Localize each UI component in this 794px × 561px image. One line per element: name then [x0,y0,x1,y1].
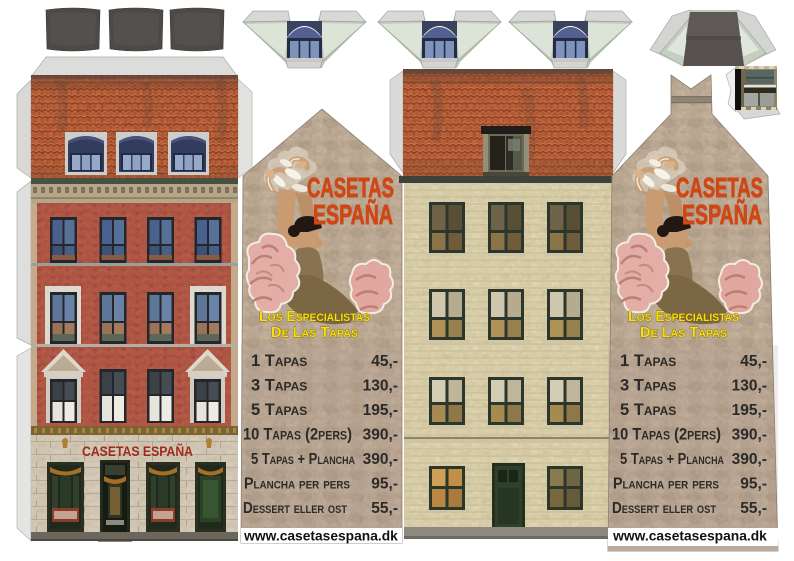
svg-text:ESPAÑA: ESPAÑA [313,199,393,230]
svg-text:45,-: 45,- [371,353,398,370]
svg-text:390,-: 390,- [363,427,398,444]
svg-text:5 Tapas + Plancha: 5 Tapas + Plancha [251,451,355,468]
svg-text:95,-: 95,- [371,476,398,493]
svg-text:Los Especialistas: Los Especialistas [259,308,370,325]
svg-text:De Las Tapas: De Las Tapas [271,324,358,341]
svg-text:130,-: 130,- [363,378,398,395]
svg-text:1 Tapas: 1 Tapas [251,352,307,370]
svg-text:195,-: 195,- [363,402,398,419]
svg-text:www.casetasespana.dk: www.casetasespana.dk [243,529,398,544]
svg-text:Dessert eller ost: Dessert eller ost [243,500,347,517]
svg-text:5 Tapas: 5 Tapas [251,401,307,419]
svg-text:10 Tapas (2pers): 10 Tapas (2pers) [243,426,352,444]
svg-text:Plancha per pers: Plancha per pers [244,476,350,493]
svg-text:55,-: 55,- [371,500,398,517]
svg-text:390,-: 390,- [363,451,398,468]
svg-text:CASETAS ESPAÑA: CASETAS ESPAÑA [82,444,193,459]
svg-text:3 Tapas: 3 Tapas [251,377,307,395]
